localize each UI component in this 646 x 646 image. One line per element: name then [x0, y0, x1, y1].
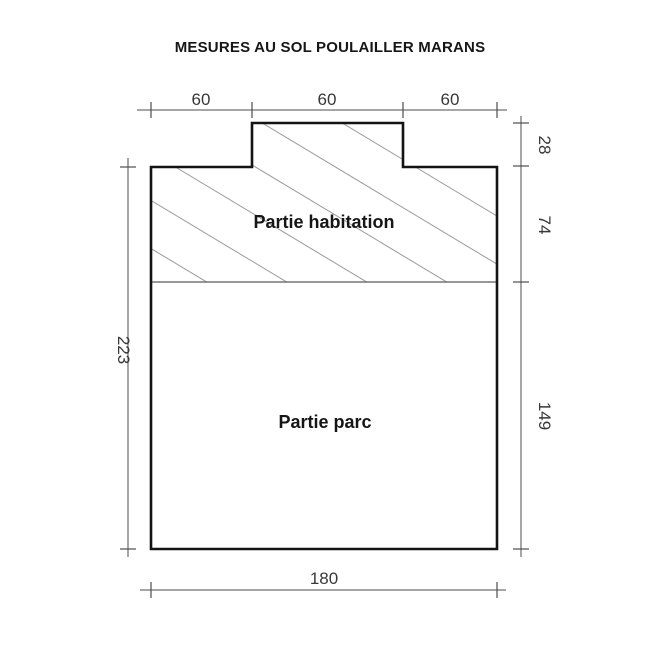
dim-left: 223	[114, 336, 133, 364]
dim-right-bottom: 149	[535, 402, 554, 430]
right-dimension-labels: 28 74 149	[535, 136, 554, 431]
dim-right-top: 28	[535, 136, 554, 155]
dim-top-center: 60	[318, 90, 337, 109]
dim-bottom: 180	[310, 569, 338, 588]
top-dimension-labels: 60 60 60	[192, 90, 460, 109]
hatch-line	[304, 100, 620, 290]
hatch-line	[384, 100, 646, 290]
bottom-dimension-labels: 180	[310, 569, 338, 588]
hatch-line	[224, 100, 540, 290]
hatch-line	[0, 100, 220, 290]
diagram-canvas: MESURES AU SOL POULAILLER MARANS Partie …	[0, 0, 646, 646]
hatch-line	[144, 100, 460, 290]
coop-outline	[151, 123, 497, 549]
hatch-line	[464, 100, 646, 290]
hatch-line	[64, 100, 380, 290]
right-dimension-line	[513, 116, 529, 557]
parc-area-label: Partie parc	[278, 412, 371, 432]
left-dimension-labels: 223	[114, 336, 133, 364]
habitation-area-label: Partie habitation	[253, 212, 394, 232]
page-title: MESURES AU SOL POULAILLER MARANS	[175, 39, 486, 56]
floor-plan-svg: MESURES AU SOL POULAILLER MARANS Partie …	[0, 0, 646, 646]
dim-top-right: 60	[441, 90, 460, 109]
hatch-pattern	[0, 100, 646, 290]
dim-top-left: 60	[192, 90, 211, 109]
dim-right-middle: 74	[535, 216, 554, 235]
